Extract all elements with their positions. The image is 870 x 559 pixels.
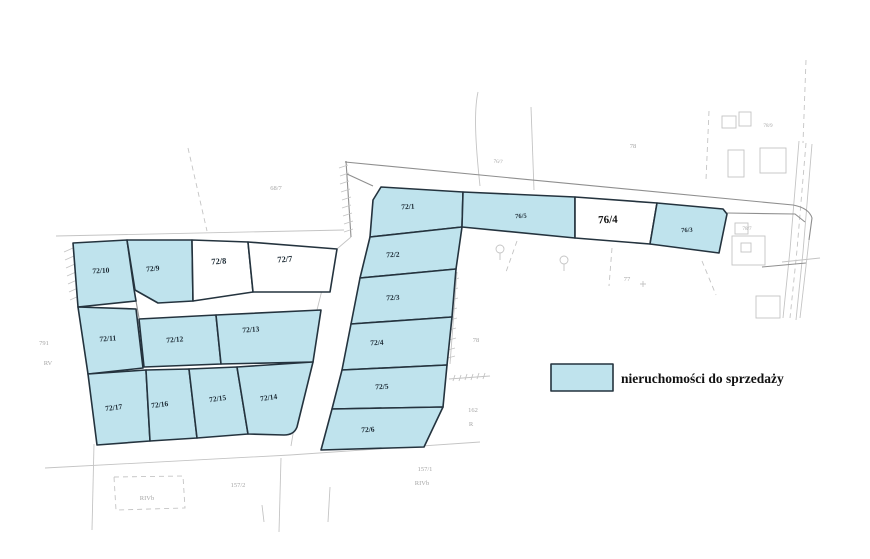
- parcel-72-6: [321, 407, 443, 450]
- parcel-72-4: [342, 317, 452, 370]
- bg-label-rivb-2: RIVb: [415, 480, 429, 487]
- bg-label-r: R: [469, 421, 474, 428]
- bg-label-157-1: 157/1: [418, 466, 433, 473]
- parcel-label-72-12: 72/12: [166, 334, 184, 344]
- parcel-label-76-3: 76/3: [681, 227, 694, 235]
- parcels: [73, 187, 727, 450]
- legend-label: nieruchomości do sprzedaży: [621, 371, 784, 386]
- bg-label-77: 77: [624, 276, 631, 283]
- bg-label-68-7: 68/7: [270, 185, 282, 192]
- parcel-label-72-11: 72/11: [99, 333, 117, 343]
- bg-label-rivb-1: RIVb: [140, 495, 154, 502]
- legend-swatch: [551, 364, 613, 391]
- parcel-72-5: [332, 365, 447, 409]
- bg-label-791: 791: [39, 340, 49, 347]
- parcel-label-72-8: 72/8: [211, 255, 227, 266]
- parcel-label-72-2: 72/2: [386, 250, 400, 260]
- parcel-72-3: [351, 269, 456, 324]
- parcel-label-72-5: 72/5: [375, 382, 389, 392]
- parcel-label-72-13: 72/13: [242, 324, 260, 334]
- bg-label-76-7: 76/7: [493, 159, 503, 166]
- parcel-label-76-5: 76/5: [515, 213, 528, 221]
- bg-label-rv: RV: [44, 360, 53, 367]
- parcel-72-9: [127, 240, 193, 303]
- cadastral-map: 72/10 72/9 72/8 72/7 72/11 72/12 72/13 7…: [0, 0, 870, 559]
- parcel-72-13: [216, 310, 321, 364]
- parcel-label-72-1: 72/1: [401, 202, 415, 212]
- parcel-label-72-7: 72/7: [277, 253, 294, 264]
- bg-label-162: 162: [468, 407, 478, 414]
- parcel-label-72-9: 72/9: [146, 263, 160, 273]
- parcel-72-8: [192, 240, 253, 301]
- bg-label-78-mid: 78: [473, 337, 480, 344]
- parcel-label-72-10: 72/10: [92, 266, 110, 276]
- legend: nieruchomości do sprzedaży: [551, 364, 784, 391]
- bg-label-78-top: 78: [630, 143, 637, 150]
- parcel-72-7: [248, 242, 337, 292]
- parcel-label-72-6: 72/6: [361, 425, 375, 435]
- bg-label-78-7: 78/7: [742, 226, 752, 232]
- parcel-label-72-4: 72/4: [370, 338, 384, 348]
- building-outlines: [722, 112, 786, 318]
- bg-label-78-9: 78/9: [763, 123, 773, 129]
- parcel-label-76-4: 76/4: [598, 214, 618, 227]
- parcel-label-72-3: 72/3: [386, 293, 400, 303]
- bg-label-157-2: 157/2: [231, 482, 246, 489]
